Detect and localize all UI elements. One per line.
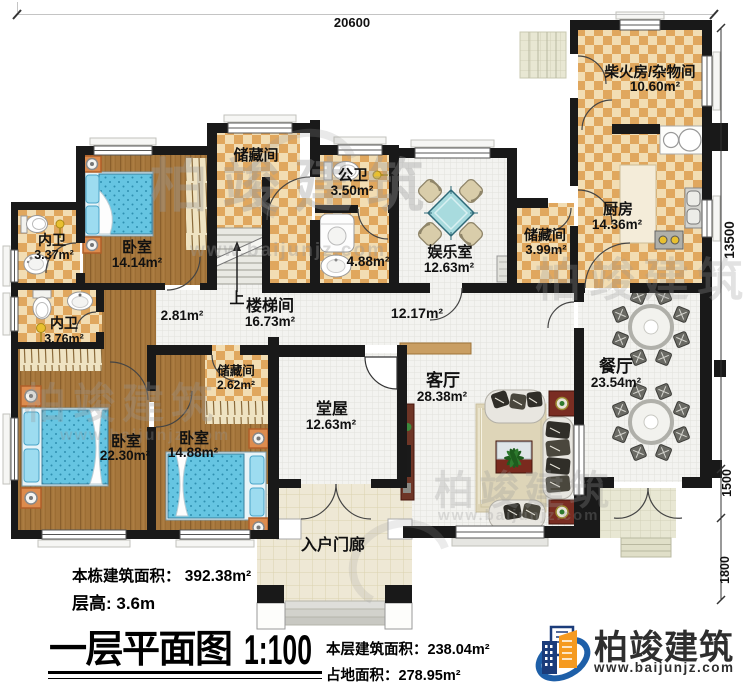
svg-text:14.88m²: 14.88m²: [168, 445, 219, 460]
svg-text:14.14m²: 14.14m²: [112, 255, 163, 270]
svg-text:3.50m²: 3.50m²: [331, 183, 374, 198]
svg-text:柏竣建筑: 柏竣建筑: [150, 154, 438, 219]
svg-text:2.62m²: 2.62m²: [217, 378, 255, 392]
svg-text:柏竣建筑: 柏竣建筑: [24, 380, 220, 427]
svg-text:公卫: 公卫: [338, 167, 368, 184]
svg-text:储藏间: 储藏间: [216, 363, 255, 378]
svg-text:楼梯间: 楼梯间: [246, 296, 294, 315]
svg-text:卧室: 卧室: [122, 238, 152, 256]
svg-text:4.88m²: 4.88m²: [347, 254, 390, 269]
svg-text:16.73m²: 16.73m²: [245, 314, 296, 329]
svg-text:23.54m²: 23.54m²: [591, 375, 642, 390]
svg-text:12.17m²: 12.17m²: [391, 305, 443, 321]
svg-text:餐厅: 餐厅: [599, 356, 633, 376]
svg-text:占地面积：278.95m²: 占地面积：278.95m²: [326, 666, 461, 684]
svg-text:储藏间: 储藏间: [523, 227, 566, 243]
svg-text:www.baijunjz.com: www.baijunjz.com: [437, 507, 599, 524]
svg-text:www.baijunjz.com: www.baijunjz.com: [593, 660, 735, 675]
svg-text:20600: 20600: [334, 15, 370, 30]
svg-text:13500: 13500: [722, 221, 737, 259]
svg-text:上: 上: [229, 290, 244, 307]
svg-text:12.63m²: 12.63m²: [306, 417, 357, 432]
svg-text:本栋建筑面积： 392.38m²: 本栋建筑面积： 392.38m²: [72, 566, 251, 585]
svg-text:本层建筑面积：238.04m²: 本层建筑面积：238.04m²: [326, 640, 490, 658]
svg-text:内卫: 内卫: [50, 315, 78, 331]
svg-text:3.76m²: 3.76m²: [44, 332, 84, 346]
svg-text:娱乐室: 娱乐室: [427, 243, 472, 261]
svg-text:1800: 1800: [718, 556, 732, 584]
svg-text:22.30m²: 22.30m²: [100, 448, 151, 463]
svg-text:一层平面图: 一层平面图: [49, 629, 232, 671]
svg-text:柏竣建筑: 柏竣建筑: [535, 254, 750, 306]
svg-text:1500: 1500: [720, 469, 734, 497]
svg-text:3.37m²: 3.37m²: [34, 248, 74, 262]
svg-text:厨房: 厨房: [603, 200, 633, 218]
svg-text:3.99m²: 3.99m²: [525, 242, 567, 257]
svg-text:入户门廊: 入户门廊: [301, 535, 365, 554]
svg-text:堂屋: 堂屋: [316, 399, 348, 418]
svg-text:客厅: 客厅: [425, 370, 460, 390]
svg-text:2.81m²: 2.81m²: [161, 308, 204, 323]
svg-text:储藏间: 储藏间: [233, 146, 278, 164]
svg-text:1:100: 1:100: [244, 626, 312, 673]
svg-text:28.38m²: 28.38m²: [417, 389, 468, 404]
svg-text:层高: 3.6m: 层高: 3.6m: [72, 593, 155, 613]
svg-text:内卫: 内卫: [38, 232, 66, 248]
svg-text:12.63m²: 12.63m²: [424, 260, 475, 275]
svg-text:10.60m²: 10.60m²: [630, 79, 681, 94]
svg-text:14.36m²: 14.36m²: [592, 217, 643, 232]
